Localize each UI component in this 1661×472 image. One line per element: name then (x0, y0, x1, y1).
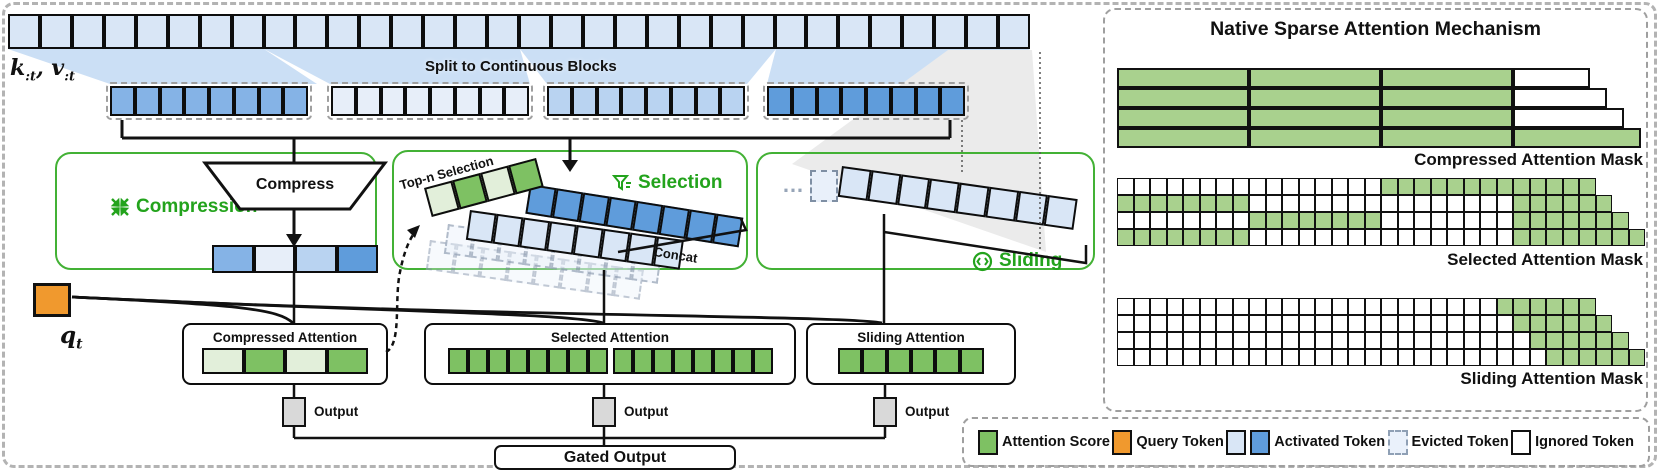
mask-cell (1497, 298, 1514, 315)
mask-cell (1183, 315, 1200, 332)
selected-mask-label: Selected Attention Mask (1243, 250, 1643, 270)
mask-cell (1117, 212, 1134, 229)
mask-cell (1282, 178, 1299, 195)
mask-cell (1546, 212, 1563, 229)
token-cell (956, 183, 990, 218)
mask-cell (1134, 349, 1151, 366)
token-cell (160, 86, 185, 116)
mask-cell (1596, 212, 1613, 229)
token-cell (646, 86, 671, 116)
mask-cell (1266, 178, 1283, 195)
token-cell (244, 348, 286, 374)
mask-cell (1200, 195, 1217, 212)
mask-cell (1381, 298, 1398, 315)
mask-cell (1332, 349, 1349, 366)
mask-cell (1150, 212, 1167, 229)
evicted-token (810, 170, 838, 202)
mask-cell (1464, 212, 1481, 229)
mask-cell (1348, 298, 1365, 315)
token-cell (985, 187, 1019, 222)
split-label: Split to Continuous Blocks (425, 58, 617, 75)
mask-cell (1447, 229, 1464, 246)
mask-cell (1546, 298, 1563, 315)
token-cell (767, 86, 792, 116)
token-cell (72, 14, 104, 49)
token-cell (588, 348, 608, 374)
token-cell (713, 348, 733, 374)
sliding-attention-mask (1117, 298, 1645, 366)
mask-cell (1233, 212, 1250, 229)
mask-cell (1464, 298, 1481, 315)
mask-cell (1365, 315, 1382, 332)
mask-row (1117, 68, 1641, 88)
token-cell (679, 14, 711, 49)
mask-cell (1266, 315, 1283, 332)
token-cell (743, 14, 775, 49)
token-block-1 (106, 82, 312, 120)
mask-cell (1299, 178, 1316, 195)
mask-cell (1596, 315, 1613, 332)
mask-cell (1546, 332, 1563, 349)
token-cell (359, 14, 391, 49)
mask-cell (1513, 298, 1530, 315)
token-cell (572, 86, 597, 116)
right-panel-title: Native Sparse Attention Mechanism (1103, 18, 1648, 41)
token-cell (295, 245, 337, 273)
token-cell (202, 348, 244, 374)
token-cell (966, 14, 998, 49)
mask-cell (1563, 332, 1580, 349)
mask-cell (1233, 315, 1250, 332)
mask-cell (1216, 195, 1233, 212)
token-block-3 (543, 82, 749, 120)
mask-cell (1579, 212, 1596, 229)
mask-cell (1447, 178, 1464, 195)
mask-cell (1414, 229, 1431, 246)
mask-cell (1513, 212, 1530, 229)
mask-row (1117, 349, 1645, 366)
token-cell (597, 86, 622, 116)
token-cell (136, 14, 168, 49)
token-cell (331, 86, 356, 116)
mask-cell (1464, 315, 1481, 332)
mask-cell (1497, 212, 1514, 229)
mask-cell (1563, 178, 1580, 195)
mask-cell (1266, 195, 1283, 212)
mask-cell (1579, 195, 1596, 212)
mask-cell (1134, 178, 1151, 195)
mask-cell (1398, 315, 1415, 332)
mask-cell (1414, 349, 1431, 366)
mask-cell (1579, 178, 1596, 195)
output-node-selected (592, 397, 616, 427)
mask-cell (1150, 332, 1167, 349)
mask-cell (1183, 229, 1200, 246)
token-cell (940, 86, 965, 116)
mask-cell (1464, 195, 1481, 212)
compressed-attention-mask (1117, 68, 1641, 148)
kv-label: k:t, v:t (10, 55, 75, 84)
mask-cell (1233, 195, 1250, 212)
token-cell (1044, 195, 1078, 230)
mask-cell (1249, 229, 1266, 246)
ignored-token-swatch (1511, 430, 1531, 455)
mask-cell (1150, 229, 1167, 246)
mask-cell (1398, 212, 1415, 229)
mask-cell (1398, 349, 1415, 366)
token-cell (817, 86, 842, 116)
mask-cell (1167, 229, 1184, 246)
mask-cell (1282, 315, 1299, 332)
token-cell (405, 86, 430, 116)
mask-cell (1332, 332, 1349, 349)
mask-cell (1150, 298, 1167, 315)
attention-box-sliding: Sliding Attention (806, 323, 1016, 385)
mask-cell (1381, 212, 1398, 229)
mask-cell (1530, 195, 1547, 212)
selection-label: Selection (612, 172, 722, 194)
mask-cell (1381, 128, 1513, 148)
mask-cell (1381, 178, 1398, 195)
mask-row (1117, 178, 1645, 195)
token-cell (468, 348, 488, 374)
mask-cell (1398, 298, 1415, 315)
token-cell (327, 14, 359, 49)
token-cell (693, 348, 713, 374)
mask-cell (1530, 212, 1547, 229)
mask-cell (1381, 88, 1513, 108)
mask-cell (1167, 315, 1184, 332)
token-cell (234, 86, 259, 116)
mask-cell (1497, 195, 1514, 212)
token-cell (568, 348, 588, 374)
mask-cell (1183, 195, 1200, 212)
legend-label: Evicted Token (1412, 434, 1509, 450)
token-cell (626, 233, 657, 266)
mask-cell (1249, 349, 1266, 366)
mask-cell (1167, 332, 1184, 349)
token-cell (838, 166, 872, 201)
mask-cell (1183, 178, 1200, 195)
mask-cell (1612, 349, 1629, 366)
token-cell (573, 225, 604, 258)
token-cell (104, 14, 136, 49)
token-cell (866, 86, 891, 116)
legend-item-evicted-token: Evicted Token (1388, 430, 1509, 455)
compressed-mask-label: Compressed Attention Mask (1243, 150, 1643, 170)
mask-row (1117, 229, 1645, 246)
mask-cell (1249, 108, 1381, 128)
mask-cell (1381, 229, 1398, 246)
mask-cell (1117, 178, 1134, 195)
activated-token-swatch-light (1226, 430, 1246, 455)
mask-row (1117, 212, 1645, 229)
token-cell (337, 245, 379, 273)
mask-cell (1381, 315, 1398, 332)
mask-cell (1431, 178, 1448, 195)
output-label-selected: Output (624, 404, 668, 419)
token-cell (838, 348, 862, 374)
mask-cell (1381, 195, 1398, 212)
mask-cell (1348, 349, 1365, 366)
token-cell (792, 86, 817, 116)
token-cell (283, 86, 308, 116)
token-cell (647, 14, 679, 49)
mask-cell (1596, 229, 1613, 246)
mask-cell (1480, 349, 1497, 366)
mask-cell (1315, 229, 1332, 246)
token-cell (488, 348, 508, 374)
mask-cell (1464, 229, 1481, 246)
mask-cell (1233, 298, 1250, 315)
mask-cell (1381, 349, 1398, 366)
token-cell (135, 86, 160, 116)
token-cell (862, 348, 886, 374)
mask-cell (1579, 349, 1596, 366)
token-cell (673, 348, 693, 374)
token-cell (960, 348, 984, 374)
mask-cell (1497, 315, 1514, 332)
mask-cell (1282, 212, 1299, 229)
mask-cell (1150, 349, 1167, 366)
output-node-sliding (873, 397, 897, 427)
mask-cell (1266, 349, 1283, 366)
mask-cell (1200, 212, 1217, 229)
mask-cell (1563, 229, 1580, 246)
mask-cell (1596, 349, 1613, 366)
token-cell (480, 86, 505, 116)
mask-cell (1497, 349, 1514, 366)
mask-cell (1480, 178, 1497, 195)
token-cell (254, 245, 296, 273)
mask-row (1117, 315, 1645, 332)
mask-cell (1431, 332, 1448, 349)
token-cell (926, 178, 960, 213)
legend-item-activated-token: Activated Token (1226, 430, 1385, 455)
token-cell (528, 348, 548, 374)
sliding-icon (972, 251, 993, 272)
mask-cell (1629, 349, 1646, 366)
mask-cell (1431, 298, 1448, 315)
mask-cell (1563, 349, 1580, 366)
mask-cell (1365, 178, 1382, 195)
mask-cell (1134, 195, 1151, 212)
mask-cell (1612, 212, 1629, 229)
nsa-figure: k:t, v:t Split to Continuous Blocks Comp… (0, 0, 1661, 472)
gated-output-box: Gated Output (494, 445, 736, 470)
mask-cell (1431, 349, 1448, 366)
mask-cell (1282, 229, 1299, 246)
sliding-dots: … (782, 172, 806, 198)
token-cell (775, 14, 807, 49)
mask-cell (1480, 195, 1497, 212)
mask-row (1117, 195, 1645, 212)
mask-cell (1398, 178, 1415, 195)
mask-cell (1117, 128, 1249, 148)
mask-cell (1134, 212, 1151, 229)
mask-cell (1200, 178, 1217, 195)
token-cell (391, 14, 423, 49)
compress-icon (110, 197, 130, 217)
compression-label: Compression (110, 196, 257, 218)
legend-item-ignored-token: Ignored Token (1511, 430, 1634, 455)
token-cell (487, 14, 519, 49)
mask-cell (1447, 212, 1464, 229)
mask-cell (1233, 349, 1250, 366)
attention-box-title: Compressed Attention (184, 330, 386, 345)
mask-cell (1579, 298, 1596, 315)
token-cell (1014, 191, 1048, 226)
mask-cell (1249, 298, 1266, 315)
mask-cell (1381, 108, 1513, 128)
mask-cell (1332, 195, 1349, 212)
mask-cell (1282, 298, 1299, 315)
legend-item-attention-score: Attention Score (978, 430, 1110, 455)
mask-cell (1200, 349, 1217, 366)
mask-cell (1315, 315, 1332, 332)
token-cell (264, 14, 296, 49)
token-cell (508, 348, 528, 374)
mask-cell (1216, 212, 1233, 229)
mask-cell (1365, 212, 1382, 229)
mask-cell (1497, 229, 1514, 246)
mask-cell (1249, 68, 1381, 88)
mask-cell (1117, 229, 1134, 246)
mask-cell (1464, 349, 1481, 366)
mask-cell (1579, 315, 1596, 332)
legend-label: Ignored Token (1535, 434, 1634, 450)
selected-attention-mask (1117, 178, 1645, 246)
token-cell (712, 214, 743, 248)
mask-cell (1117, 88, 1249, 108)
mask-cell (1464, 332, 1481, 349)
legend-label: Activated Token (1274, 434, 1385, 450)
token-cell (8, 14, 40, 49)
mask-cell (1200, 229, 1217, 246)
mask-cell (1464, 178, 1481, 195)
mask-cell (1480, 212, 1497, 229)
token-cell (209, 86, 234, 116)
mask-cell (1134, 298, 1151, 315)
token-cell (547, 86, 572, 116)
token-cell (696, 86, 721, 116)
mask-cell (1546, 195, 1563, 212)
mask-cell (1348, 315, 1365, 332)
mask-cell (1612, 332, 1629, 349)
mask-cell (1299, 212, 1316, 229)
mask-cell (1414, 178, 1431, 195)
mask-cell (1513, 128, 1641, 148)
mask-cell (1348, 332, 1365, 349)
mask-cell (1183, 332, 1200, 349)
mask-cell (1414, 298, 1431, 315)
mask-cell (1332, 229, 1349, 246)
token-cell (891, 86, 916, 116)
mask-cell (1513, 178, 1530, 195)
mask-row (1117, 128, 1641, 148)
query-label: qt (60, 322, 83, 353)
mask-cell (1249, 178, 1266, 195)
token-cell (327, 348, 369, 374)
token-cell (838, 14, 870, 49)
token-cell (911, 348, 935, 374)
mask-cell (1365, 195, 1382, 212)
mask-cell (1513, 349, 1530, 366)
legend-label: Attention Score (1002, 434, 1110, 450)
mask-cell (1266, 212, 1283, 229)
mask-cell (1200, 332, 1217, 349)
token-cell (110, 86, 135, 116)
token-cell (448, 348, 468, 374)
mask-cell (1447, 332, 1464, 349)
token-cell (168, 14, 200, 49)
mask-cell (1480, 315, 1497, 332)
mask-cell (1513, 315, 1530, 332)
token-cell (356, 86, 381, 116)
mask-cell (1249, 128, 1381, 148)
mask-row (1117, 298, 1645, 315)
mask-cell (1480, 229, 1497, 246)
token-cell (887, 348, 911, 374)
token-block-2 (327, 82, 533, 120)
mask-cell (1579, 332, 1596, 349)
token-cell (551, 14, 583, 49)
mask-cell (1546, 315, 1563, 332)
attention-box-title: Sliding Attention (808, 330, 1014, 345)
sliding-mask-label: Sliding Attention Mask (1243, 369, 1643, 389)
token-cell (295, 14, 327, 49)
mask-cell (1431, 229, 1448, 246)
mask-cell (1315, 178, 1332, 195)
token-cell (841, 86, 866, 116)
mask-cell (1447, 195, 1464, 212)
mask-cell (1150, 195, 1167, 212)
legend: Attention Score Query Token Activated To… (962, 417, 1650, 467)
mask-cell (1315, 212, 1332, 229)
token-cell (259, 86, 284, 116)
mask-cell (1249, 315, 1266, 332)
mask-cell (1348, 229, 1365, 246)
token-cell (381, 86, 406, 116)
token-cell (423, 14, 455, 49)
mask-cell (1530, 349, 1547, 366)
mask-cell (1282, 332, 1299, 349)
mask-cell (1216, 315, 1233, 332)
mask-cell (1299, 315, 1316, 332)
mask-cell (1398, 229, 1415, 246)
mask-cell (1414, 195, 1431, 212)
mask-cell (1249, 212, 1266, 229)
mask-cell (1117, 195, 1134, 212)
evicted-token-swatch (1388, 430, 1408, 455)
token-cell (212, 245, 254, 273)
query-token-swatch (1112, 430, 1132, 455)
attention-box-title: Selected Attention (426, 330, 794, 345)
mask-cell (1216, 298, 1233, 315)
mask-cell (1200, 315, 1217, 332)
token-cell (613, 348, 633, 374)
mask-cell (1117, 332, 1134, 349)
mask-cell (1150, 315, 1167, 332)
mask-cell (1167, 298, 1184, 315)
mask-cell (1381, 68, 1513, 88)
token-cell (466, 210, 497, 243)
mask-cell (1563, 315, 1580, 332)
mask-cell (1117, 315, 1134, 332)
mask-cell (1266, 229, 1283, 246)
mask-cell (1282, 195, 1299, 212)
mask-cell (1117, 108, 1249, 128)
